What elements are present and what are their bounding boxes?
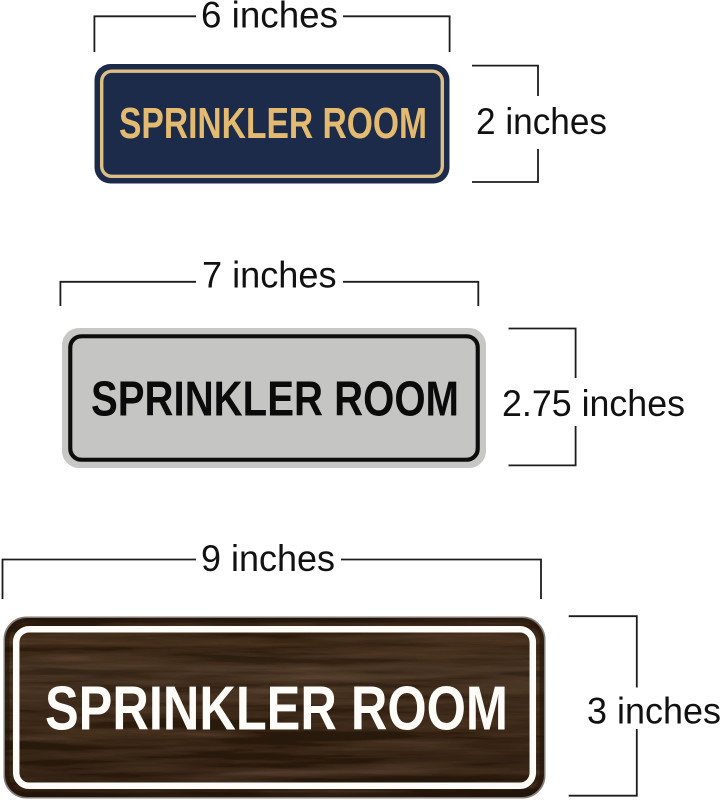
svg-text:SPRINKLER ROOM: SPRINKLER ROOM (45, 675, 508, 744)
svg-text:7 inches: 7 inches (202, 255, 337, 296)
svg-text:9 inches: 9 inches (201, 538, 335, 579)
svg-text:2 inches: 2 inches (476, 101, 607, 142)
svg-text:2.75 inches: 2.75 inches (502, 383, 685, 424)
svg-text:3 inches: 3 inches (587, 691, 721, 732)
svg-text:SPRINKLER ROOM: SPRINKLER ROOM (91, 371, 459, 426)
svg-text:SPRINKLER ROOM: SPRINKLER ROOM (119, 100, 427, 148)
svg-text:6 inches: 6 inches (201, 0, 338, 36)
